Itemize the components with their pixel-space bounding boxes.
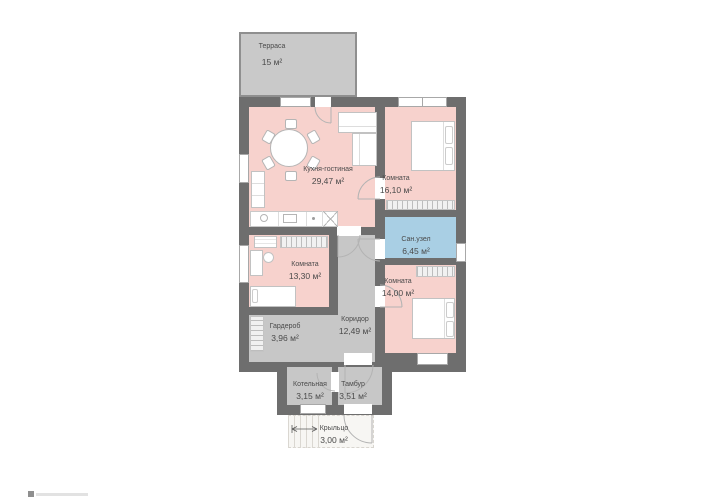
window-left-kitchen	[239, 154, 249, 183]
bed-pillow	[445, 147, 453, 165]
room-name: Терраса	[245, 43, 299, 51]
room-area: 14,00 м²	[375, 289, 421, 298]
window-boiler	[300, 404, 326, 414]
room-name: Крыльцо	[311, 425, 357, 433]
window-right-bathroom	[456, 243, 466, 262]
sofa	[338, 112, 377, 133]
cooktop-x-icon	[322, 211, 338, 227]
room-name: Комната	[282, 261, 328, 269]
floor-plan: Терраса 15 м² Кухня-гостиная 29,47 м² Ко…	[0, 0, 710, 502]
room-area: 3,00 м²	[311, 436, 357, 445]
label-porch: Крыльцо 3,00 м²	[311, 425, 357, 445]
closet-hatch-bedroom-2	[416, 266, 455, 277]
room-area: 15 м²	[245, 58, 299, 67]
label-kitchen-living: Кухня-гостиная 29,47 м²	[293, 166, 363, 186]
door-opening-bathroom	[375, 239, 385, 259]
hob-icon	[312, 217, 315, 220]
bed-pillow	[445, 126, 453, 144]
room-area: 13,30 м²	[282, 272, 328, 281]
room-area: 3,96 м²	[262, 334, 308, 343]
room-area: 29,47 м²	[293, 177, 363, 186]
label-terrace: Терраса 15 м²	[245, 43, 299, 67]
label-bathroom: Сан.узел 6,45 м²	[391, 236, 441, 256]
label-boiler: Котельная 3,15 м²	[287, 381, 333, 401]
room-name: Комната	[374, 175, 418, 183]
room-name: Кухня-гостиная	[293, 166, 363, 174]
dining-table	[270, 129, 308, 167]
oven-icon	[283, 214, 297, 223]
bed-pillow	[252, 289, 258, 303]
door-opening-porch	[344, 404, 372, 414]
dresser	[254, 236, 277, 248]
room-name: Тамбур	[330, 381, 376, 389]
bed-pillow	[446, 302, 454, 318]
sink-icon	[260, 214, 268, 222]
closet-hatch-bedroom-3	[280, 236, 328, 248]
label-wardrobe: Гардероб 3,96 м²	[262, 323, 308, 343]
bed-pillow	[446, 321, 454, 337]
window-top-bedroom-1	[398, 97, 447, 107]
window-left-bedroom-3	[239, 245, 249, 283]
closet-hatch-bedroom-1	[386, 200, 455, 210]
label-bedroom-1: Комната 16,10 м²	[374, 175, 418, 195]
window-top-kitchen	[280, 97, 311, 107]
corridor-floor	[338, 235, 375, 362]
label-corridor: Коридор 12,49 м²	[332, 316, 378, 336]
watermark-mark	[28, 491, 34, 497]
room-area: 3,15 м²	[287, 392, 333, 401]
label-bedroom-2: Комната 14,00 м²	[375, 278, 421, 298]
window-bottom-bedroom-2	[417, 353, 448, 365]
door-opening-kitchen-corridor	[337, 226, 361, 236]
label-bedroom-3: Комната 13,30 м²	[282, 261, 328, 281]
desk	[250, 250, 263, 276]
room-name: Сан.узел	[391, 236, 441, 244]
sofa-chaise	[352, 133, 377, 166]
door-opening-entrance	[344, 353, 372, 365]
room-area: 16,10 м²	[374, 186, 418, 195]
watermark-text-smudge	[36, 493, 88, 496]
terrace-door-opening	[315, 97, 331, 107]
room-name: Коридор	[332, 316, 378, 324]
dining-chair	[285, 119, 297, 129]
room-area: 12,49 м²	[332, 327, 378, 336]
room-name: Гардероб	[262, 323, 308, 331]
room-area: 6,45 м²	[391, 247, 441, 256]
room-area: 3,51 м²	[330, 392, 376, 401]
label-tambour: Тамбур 3,51 м²	[330, 381, 376, 401]
room-name: Комната	[375, 278, 421, 286]
cabinet	[251, 171, 265, 208]
desk-chair	[263, 252, 274, 263]
room-name: Котельная	[287, 381, 333, 389]
